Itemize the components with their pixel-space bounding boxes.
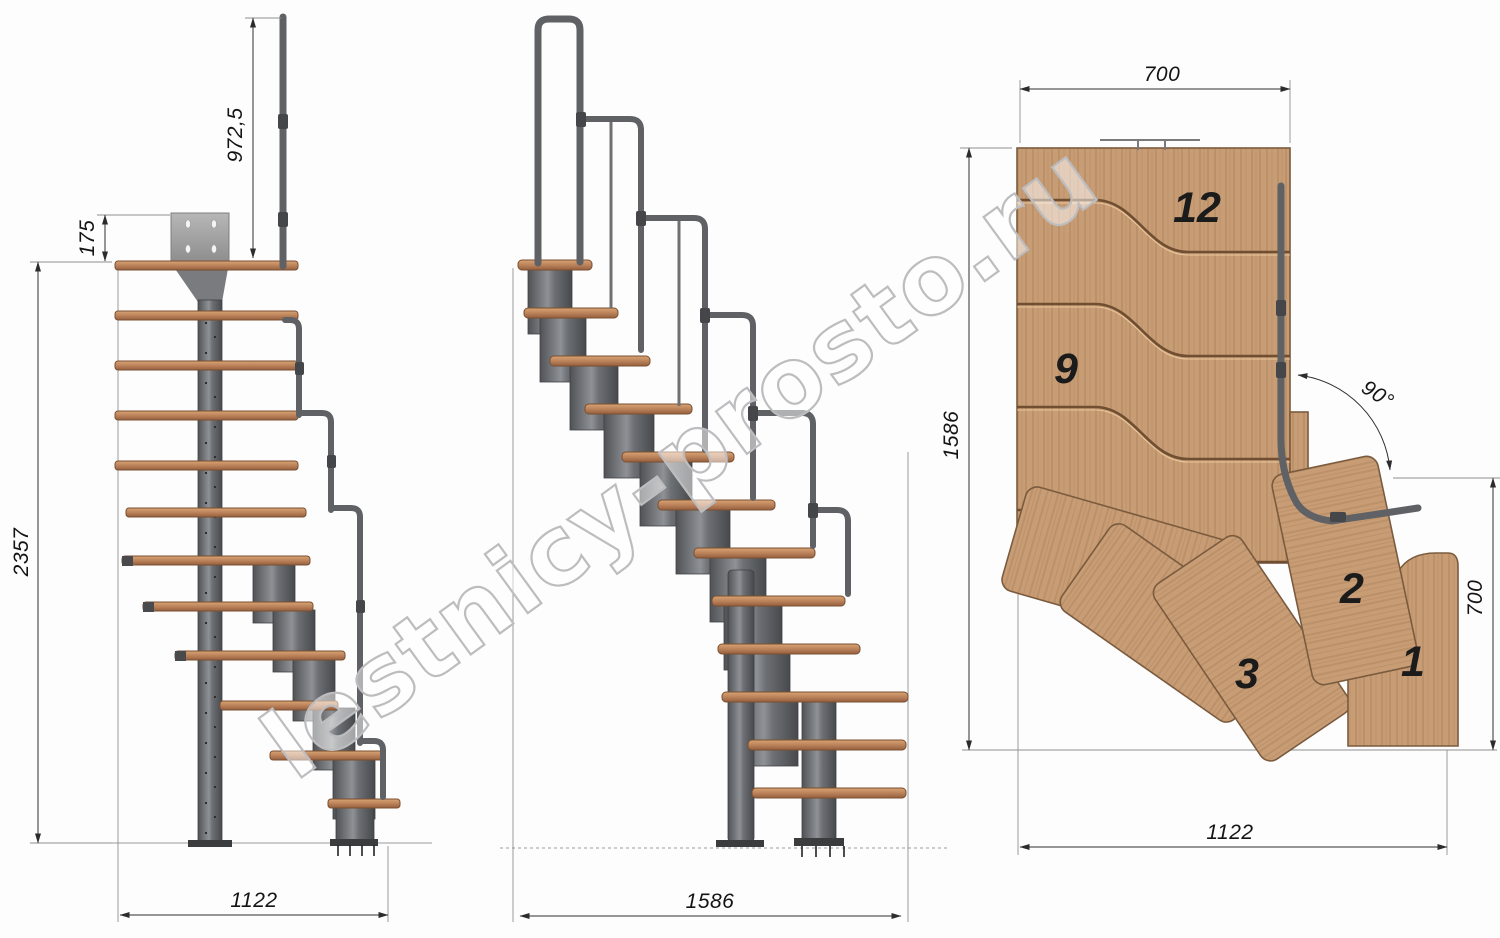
dim-total-height: 2357 <box>10 262 112 843</box>
drawing-canvas: 972,5 175 2357 1122 <box>0 0 1500 938</box>
rail-connector <box>576 112 586 127</box>
dim-plate-offset: 175 <box>76 215 170 261</box>
tread <box>115 461 298 470</box>
tread <box>524 308 618 318</box>
dim-label-plate-offset: 175 <box>76 220 99 257</box>
anchor-bolts <box>338 845 374 856</box>
rail-connector <box>278 212 288 227</box>
tread <box>712 596 845 606</box>
anchor-module <box>336 806 374 840</box>
tread <box>122 556 310 565</box>
support-column <box>728 570 754 842</box>
anchor-base-plate <box>794 838 844 846</box>
dim-plan-top-width: 700 <box>1020 63 1290 143</box>
step-number-3: 3 <box>1235 650 1259 698</box>
tread <box>115 411 298 420</box>
dim-label-front-base-length: 1586 <box>686 890 735 913</box>
step-number-9: 9 <box>1054 345 1078 393</box>
dim-front-base-length: 1586 <box>520 890 901 916</box>
tread <box>752 788 906 798</box>
rail-connector <box>1276 300 1286 316</box>
dim-label-total-height: 2357 <box>10 527 33 578</box>
dim-label-side-base-width: 1122 <box>230 889 277 912</box>
turn-angle-annotation: 90° <box>1298 375 1398 470</box>
rail-connector <box>1330 512 1346 522</box>
turn-angle-label: 90° <box>1357 376 1397 413</box>
dim-handrail-height: 972,5 <box>224 18 281 258</box>
anchor-base-plate <box>330 839 378 846</box>
watermark-text: lestnicy-prosto.ru <box>243 122 1118 801</box>
wall-mount-plate <box>171 213 229 263</box>
tread <box>748 740 906 750</box>
step-number-12: 12 <box>1173 184 1221 232</box>
column-base-plate <box>716 840 764 847</box>
side-elevation-view: 972,5 175 2357 1122 <box>10 17 432 922</box>
dim-label-plan-bottom-width: 1122 <box>1206 821 1253 844</box>
tread <box>115 311 298 320</box>
rail-connector <box>636 211 646 226</box>
tread-bracket <box>175 651 186 661</box>
tread <box>115 361 298 370</box>
step-number-2: 2 <box>1339 565 1364 613</box>
dim-plan-bottom-width: 1122 <box>1020 821 1447 847</box>
tread-bracket <box>143 602 154 612</box>
tread <box>143 602 313 611</box>
tread <box>694 548 815 558</box>
tread <box>115 261 298 270</box>
tread <box>328 799 400 808</box>
staircase-technical-drawing: 972,5 175 2357 1122 <box>0 0 1500 938</box>
handrail-segment <box>302 413 331 510</box>
tread <box>126 508 306 517</box>
column-base-plate <box>188 840 232 847</box>
tread-bracket <box>122 556 133 566</box>
step-number-1: 1 <box>1401 638 1425 686</box>
rail-connector <box>295 362 304 375</box>
rail-connector <box>808 503 818 518</box>
dim-plan-right-depth: 700 <box>1464 478 1493 750</box>
rail-connector <box>327 455 336 468</box>
dim-label-plan-top-width: 700 <box>1144 63 1181 86</box>
rail-connector <box>278 114 288 129</box>
handrail-loop <box>538 19 580 263</box>
anchor-module <box>802 700 836 840</box>
tread <box>550 356 650 366</box>
tread <box>722 692 908 702</box>
rail-connector <box>356 600 365 613</box>
dim-label-plan-right-depth: 700 <box>1464 580 1487 617</box>
tread <box>718 644 860 654</box>
handrail-segment <box>817 510 848 594</box>
rail-connector <box>1276 362 1286 378</box>
dim-label-handrail-height: 972,5 <box>224 107 247 162</box>
central-column <box>198 300 222 843</box>
dim-label-plan-left-length: 1586 <box>940 411 963 460</box>
rail-connector <box>700 308 710 323</box>
dim-side-base-width: 1122 <box>120 846 388 922</box>
